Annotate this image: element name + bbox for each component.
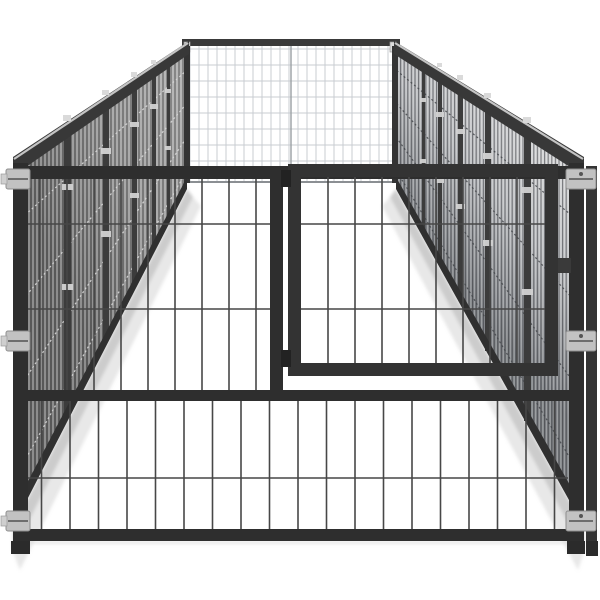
back-wall-mesh: [182, 39, 400, 183]
kennel-illustration: [0, 0, 600, 600]
gate-top-bar: [288, 164, 558, 177]
gate-latch: [558, 258, 571, 273]
left-foot: [11, 541, 30, 554]
gate-left-bar: [288, 164, 301, 376]
gate-hinge-bottom: [281, 350, 291, 367]
right-foot: [567, 541, 585, 554]
gate-hinge-gap: [284, 180, 288, 360]
gate-right-bar: [545, 164, 558, 376]
product-photo-dog-kennel: [0, 0, 600, 600]
back-left-corner-post: [184, 46, 190, 183]
front-lower-mesh: [42, 401, 555, 529]
back-wall-top-rail: [182, 39, 400, 46]
right-wall-foot: [586, 541, 598, 556]
front-left-post: [13, 163, 28, 554]
front-mid-rail: [13, 390, 584, 401]
gate-hinge-top: [281, 170, 291, 187]
front-right-post: [569, 163, 584, 554]
back-right-corner-post: [392, 46, 398, 183]
right-wall-front-post: [586, 166, 597, 543]
gate-bottom-bar: [288, 363, 558, 376]
front-bottom-rail: [13, 529, 584, 541]
